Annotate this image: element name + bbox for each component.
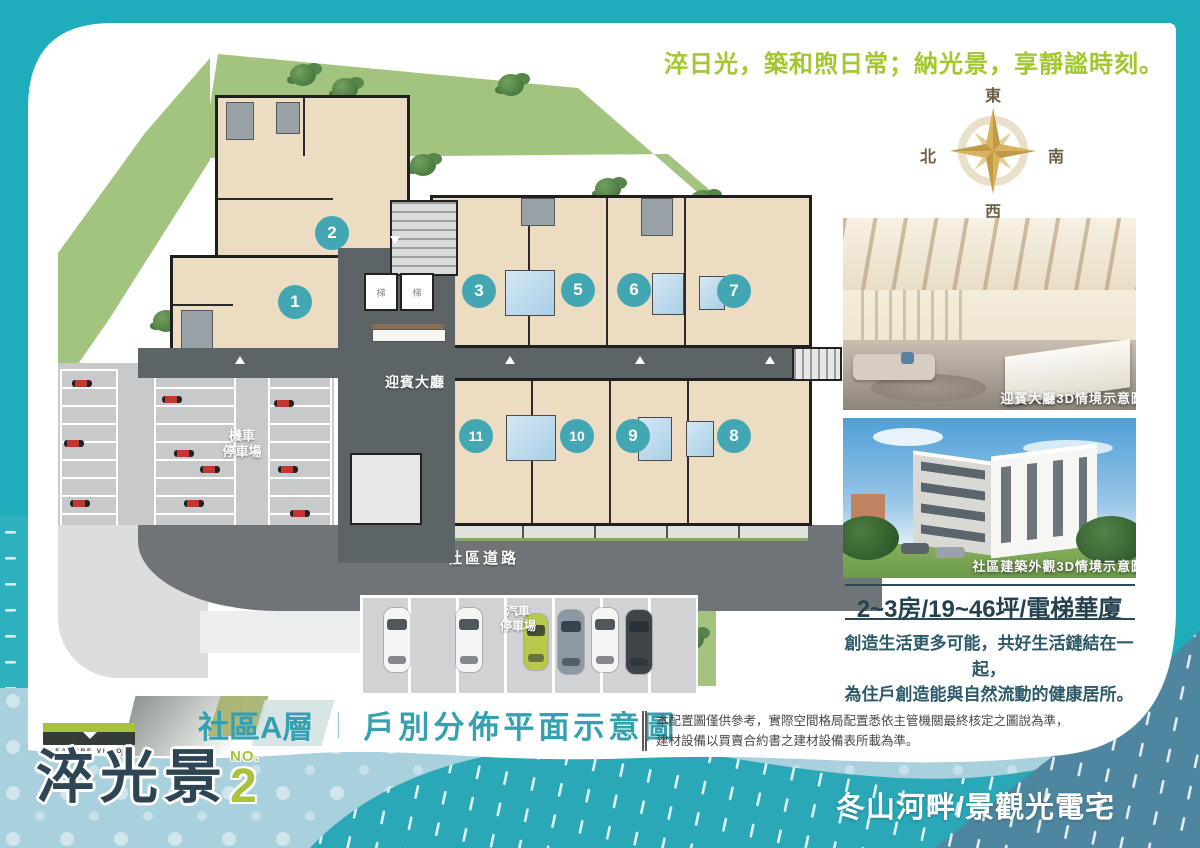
motorcycle bbox=[200, 466, 220, 473]
unit-badge-11: 11 bbox=[459, 419, 493, 453]
car bbox=[384, 608, 410, 672]
render-pillow bbox=[901, 352, 914, 364]
logo-green-bar bbox=[43, 723, 135, 732]
bathroom bbox=[641, 198, 673, 236]
car bbox=[592, 608, 618, 672]
compass-north-label: 北 bbox=[920, 143, 936, 167]
lobby-render-photo: 迎賓大廳3D情境示意圖 bbox=[843, 218, 1136, 410]
divider-line bbox=[845, 618, 1135, 620]
render-windows bbox=[921, 462, 985, 543]
unit-badge-8: 8 bbox=[717, 419, 751, 453]
building-wing-unit2 bbox=[215, 95, 410, 267]
reception-desk bbox=[372, 329, 446, 342]
render-building-left-face bbox=[913, 450, 993, 555]
marketing-description: 創造生活更多可能，共好生活鏈結在一起， 為住戶創造能與自然流動的健康居所。 bbox=[836, 631, 1142, 708]
building-block-upper bbox=[430, 195, 812, 348]
site-floor-plan: 機車 停車場 社區道路 汽車 停車場 bbox=[50, 48, 846, 708]
interior-wall bbox=[684, 198, 686, 345]
motorcycle bbox=[278, 466, 298, 473]
motorcycle-parking-label: 機車 停車場 bbox=[202, 428, 282, 461]
render-ceiling-beams bbox=[843, 218, 1136, 298]
bathroom bbox=[652, 273, 684, 315]
brand-name: 淬光景 NO. 2 bbox=[36, 746, 260, 810]
render-car bbox=[935, 547, 965, 558]
compass-rose: 東 南 西 北 bbox=[928, 86, 1058, 216]
unit-badge-1: 1 bbox=[278, 285, 312, 319]
render-windows bbox=[1001, 457, 1087, 544]
unit-badge-2: 2 bbox=[315, 216, 349, 250]
divider-line bbox=[845, 584, 1135, 586]
elevator-label: 梯 bbox=[376, 286, 385, 299]
unit-badge-7: 7 bbox=[717, 274, 751, 308]
plan-title-divider: ｜ bbox=[325, 706, 351, 743]
disclaimer-line2: 建材設備以買賣合約書之建材設備表所載為準。 bbox=[656, 731, 1076, 751]
unit-badge-10: 10 bbox=[560, 419, 594, 453]
direction-arrow-icon bbox=[765, 356, 775, 364]
plan-title-right: 戶別分佈平面示意圖 bbox=[363, 702, 678, 747]
exterior-render-photo: 社區建築外觀3D情境示意圖 bbox=[843, 418, 1136, 578]
car-parking-label-line2: 停車場 bbox=[486, 619, 550, 634]
logo-mountain-icon bbox=[83, 732, 97, 739]
render-cloud bbox=[873, 428, 943, 446]
motorcycle bbox=[174, 450, 194, 457]
plan-title: 社區A層 ｜ 戶別分佈平面示意圖 bbox=[198, 702, 678, 747]
description-line2: 為住戶創造能與自然流動的健康居所。 bbox=[836, 682, 1142, 708]
lobby-label-text: 迎賓大廳 bbox=[360, 374, 470, 392]
render-car bbox=[901, 543, 929, 554]
bathroom bbox=[506, 415, 556, 461]
description-line1: 創造生活更多可能，共好生活鏈結在一起， bbox=[836, 631, 1142, 682]
bathroom bbox=[226, 102, 254, 140]
motorcycle bbox=[72, 380, 92, 387]
tree bbox=[498, 74, 524, 96]
motorcycle bbox=[290, 510, 310, 517]
render-sofa bbox=[853, 354, 935, 380]
bathroom bbox=[521, 198, 555, 226]
direction-arrow-icon bbox=[505, 356, 515, 364]
direction-arrow-icon bbox=[635, 356, 645, 364]
bathroom bbox=[505, 270, 555, 316]
direction-arrow-icon bbox=[235, 356, 245, 364]
garage-room bbox=[350, 453, 422, 525]
motorcycle bbox=[70, 500, 90, 507]
car bbox=[558, 610, 584, 674]
car-parking-label-line1: 汽車 bbox=[486, 604, 550, 619]
car-parking-label: 汽車 停車場 bbox=[486, 604, 550, 634]
elevator-label: 梯 bbox=[412, 286, 421, 299]
brand-name-text: 淬光景 bbox=[36, 746, 228, 810]
motorcycle-parking-label-line2: 停車場 bbox=[202, 444, 282, 460]
poster-page: { "tagline": "淬日光，築和煦日常；納光景，享靜謐時刻。", "co… bbox=[0, 0, 1200, 848]
interior-wall bbox=[606, 198, 608, 345]
balcony-strip bbox=[450, 526, 808, 541]
motorcycle-parking-label-line1: 機車 bbox=[202, 428, 282, 444]
car bbox=[456, 608, 482, 672]
plan-title-left: 社區A層 bbox=[198, 702, 313, 747]
unit-badge-9: 9 bbox=[616, 419, 650, 453]
motorcycle bbox=[64, 440, 84, 447]
elevator: 梯 bbox=[400, 273, 434, 311]
interior-wall bbox=[218, 198, 333, 200]
exterior-stair bbox=[792, 347, 842, 381]
interior-wall bbox=[173, 304, 233, 306]
interior-wall bbox=[609, 381, 611, 523]
tree bbox=[290, 64, 316, 86]
brand-number: 2 bbox=[230, 765, 260, 808]
car bbox=[626, 610, 652, 674]
stairwell bbox=[390, 200, 458, 276]
motorcycle bbox=[184, 500, 204, 507]
logo-dark-bar bbox=[43, 732, 135, 745]
lobby-label: 迎賓大廳 bbox=[360, 374, 470, 392]
slogan: 冬山河畔/景觀光電宅 bbox=[836, 784, 1166, 826]
unit-badge-6: 6 bbox=[617, 273, 651, 307]
lobby-render-caption: 迎賓大廳3D情境示意圖 bbox=[1000, 388, 1136, 407]
interior-wall bbox=[303, 98, 305, 156]
direction-arrow-icon bbox=[390, 236, 400, 244]
compass-south-label: 南 bbox=[1048, 143, 1064, 167]
compass-east-label: 東 bbox=[985, 82, 1001, 106]
bathroom bbox=[276, 102, 300, 134]
disclaimer-line1: 本配置圖僅供參考，實際空間格局配置悉依主管機關最終核定之圖說為準， bbox=[656, 711, 1076, 731]
tree bbox=[410, 154, 436, 176]
exterior-render-caption: 社區建築外觀3D情境示意圖 bbox=[972, 556, 1136, 575]
motorcycle bbox=[274, 400, 294, 407]
unit-badge-5: 5 bbox=[561, 273, 595, 307]
motorcycle bbox=[162, 396, 182, 403]
elevator: 梯 bbox=[364, 273, 398, 311]
disclaimer: 本配置圖僅供參考，實際空間格局配置悉依主管機關最終核定之圖說為準， 建材設備以買… bbox=[642, 711, 1076, 751]
bathroom bbox=[686, 421, 714, 457]
unit-badge-3: 3 bbox=[462, 274, 496, 308]
